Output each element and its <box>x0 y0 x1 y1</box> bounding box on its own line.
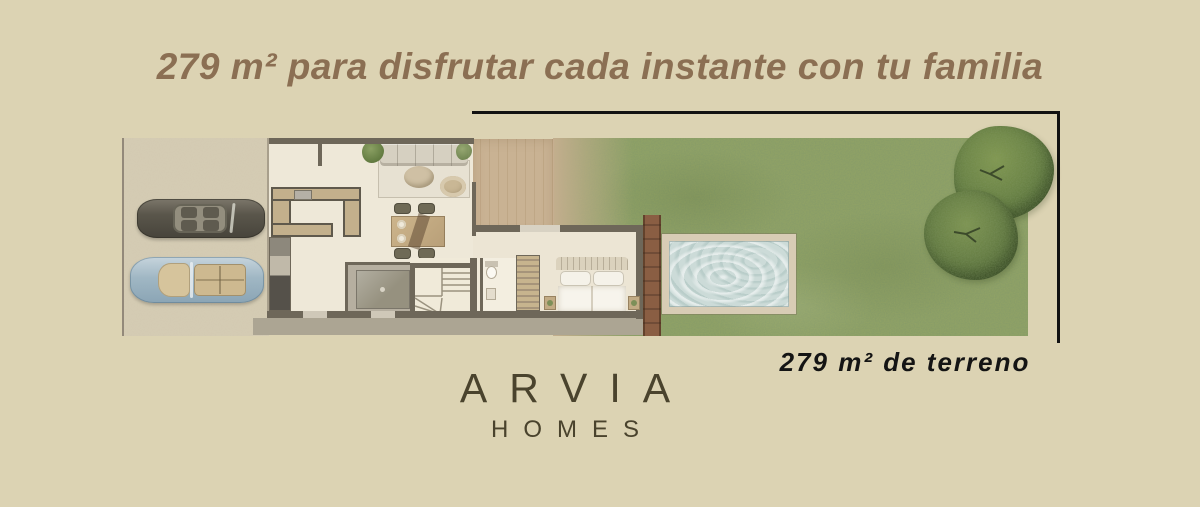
timber-screen <box>643 215 661 336</box>
car-dark-icon <box>137 199 265 238</box>
pillow <box>593 271 624 286</box>
tree-icon <box>920 126 1056 292</box>
pool <box>662 234 796 314</box>
staircase <box>410 258 480 318</box>
table-runner <box>408 213 430 250</box>
car-windshield <box>229 203 235 233</box>
stair-treads <box>410 258 480 318</box>
car-seat-divider <box>196 279 244 281</box>
dining-chair <box>418 203 435 214</box>
shower-drain <box>380 287 385 292</box>
dining-chair <box>394 248 411 259</box>
kitchen-counter <box>343 199 361 237</box>
plate <box>397 220 406 229</box>
car-cabin <box>194 264 246 296</box>
nightstand <box>544 296 556 310</box>
kitchen-sink <box>294 190 312 200</box>
floor-plan <box>122 138 1028 336</box>
nightstand <box>628 296 640 310</box>
wall-stub <box>318 144 322 166</box>
car-blue-icon <box>130 257 264 303</box>
utility-room <box>345 262 418 314</box>
door-opening <box>303 311 327 318</box>
terrain-caption: 279 m² de terreno <box>745 347 1065 378</box>
plant-icon <box>631 300 637 306</box>
pool-water <box>669 241 789 307</box>
toilet <box>486 266 497 279</box>
brand-subtitle: HOMES <box>380 416 750 444</box>
coffee-table <box>440 176 466 197</box>
sidewalk <box>253 318 643 335</box>
car-windshield <box>190 262 193 298</box>
door-opening <box>371 311 395 318</box>
shower <box>356 270 410 309</box>
car-front-seats <box>158 263 190 297</box>
car-seat <box>181 207 197 218</box>
tree-branches <box>920 126 1056 292</box>
wall-top <box>267 138 474 144</box>
car-seat <box>203 220 219 231</box>
bed-duvet <box>558 286 626 312</box>
car-seat <box>203 207 219 218</box>
bathroom-sink <box>486 288 496 300</box>
bathroom <box>480 258 517 311</box>
brand-name: ARVIA <box>380 368 750 409</box>
headline-title: 279 m² para disfrutar cada instante con … <box>0 46 1200 88</box>
wood-deck <box>472 139 554 236</box>
plant-icon <box>547 300 553 306</box>
bedroom-window <box>520 225 560 232</box>
car-cockpit <box>173 204 227 233</box>
bed-headboard <box>556 257 628 270</box>
kitchen-counter <box>271 223 333 237</box>
wardrobe <box>516 255 540 311</box>
sofa <box>380 142 468 166</box>
marketing-flyer: 279 m² para disfrutar cada instante con … <box>0 0 1200 507</box>
ottoman <box>404 166 434 188</box>
dining-table <box>391 216 445 247</box>
brand-logo: ARVIA HOMES <box>380 368 750 444</box>
plate <box>397 234 406 243</box>
car-seat <box>181 220 197 231</box>
kitchen-appliances <box>269 237 291 311</box>
dining-chair <box>394 203 411 214</box>
pillow <box>560 271 591 286</box>
